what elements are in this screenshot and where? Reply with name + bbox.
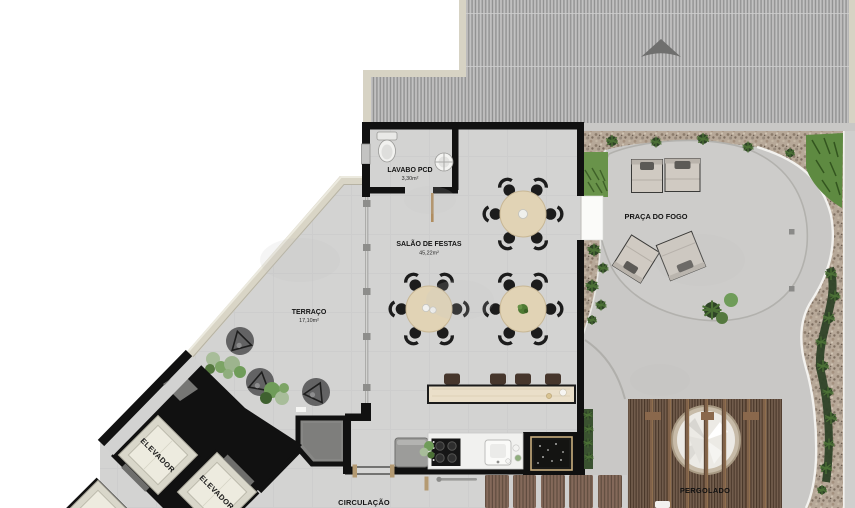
svg-text:SALÃO DE FESTAS: SALÃO DE FESTAS [396, 239, 462, 248]
svg-text:TERRAÇO: TERRAÇO [292, 309, 327, 316]
svg-text:LAVABO PCD: LAVABO PCD [387, 167, 432, 174]
svg-text:CIRCULAÇÃO: CIRCULAÇÃO [338, 498, 390, 507]
svg-text:17,10m²: 17,10m² [299, 318, 319, 324]
svg-text:PERGOLADO: PERGOLADO [680, 486, 730, 495]
svg-text:45,22m²: 45,22m² [419, 251, 439, 257]
svg-text:PRAÇA DO FOGO: PRAÇA DO FOGO [625, 212, 688, 221]
svg-text:3,30m²: 3,30m² [402, 176, 419, 182]
